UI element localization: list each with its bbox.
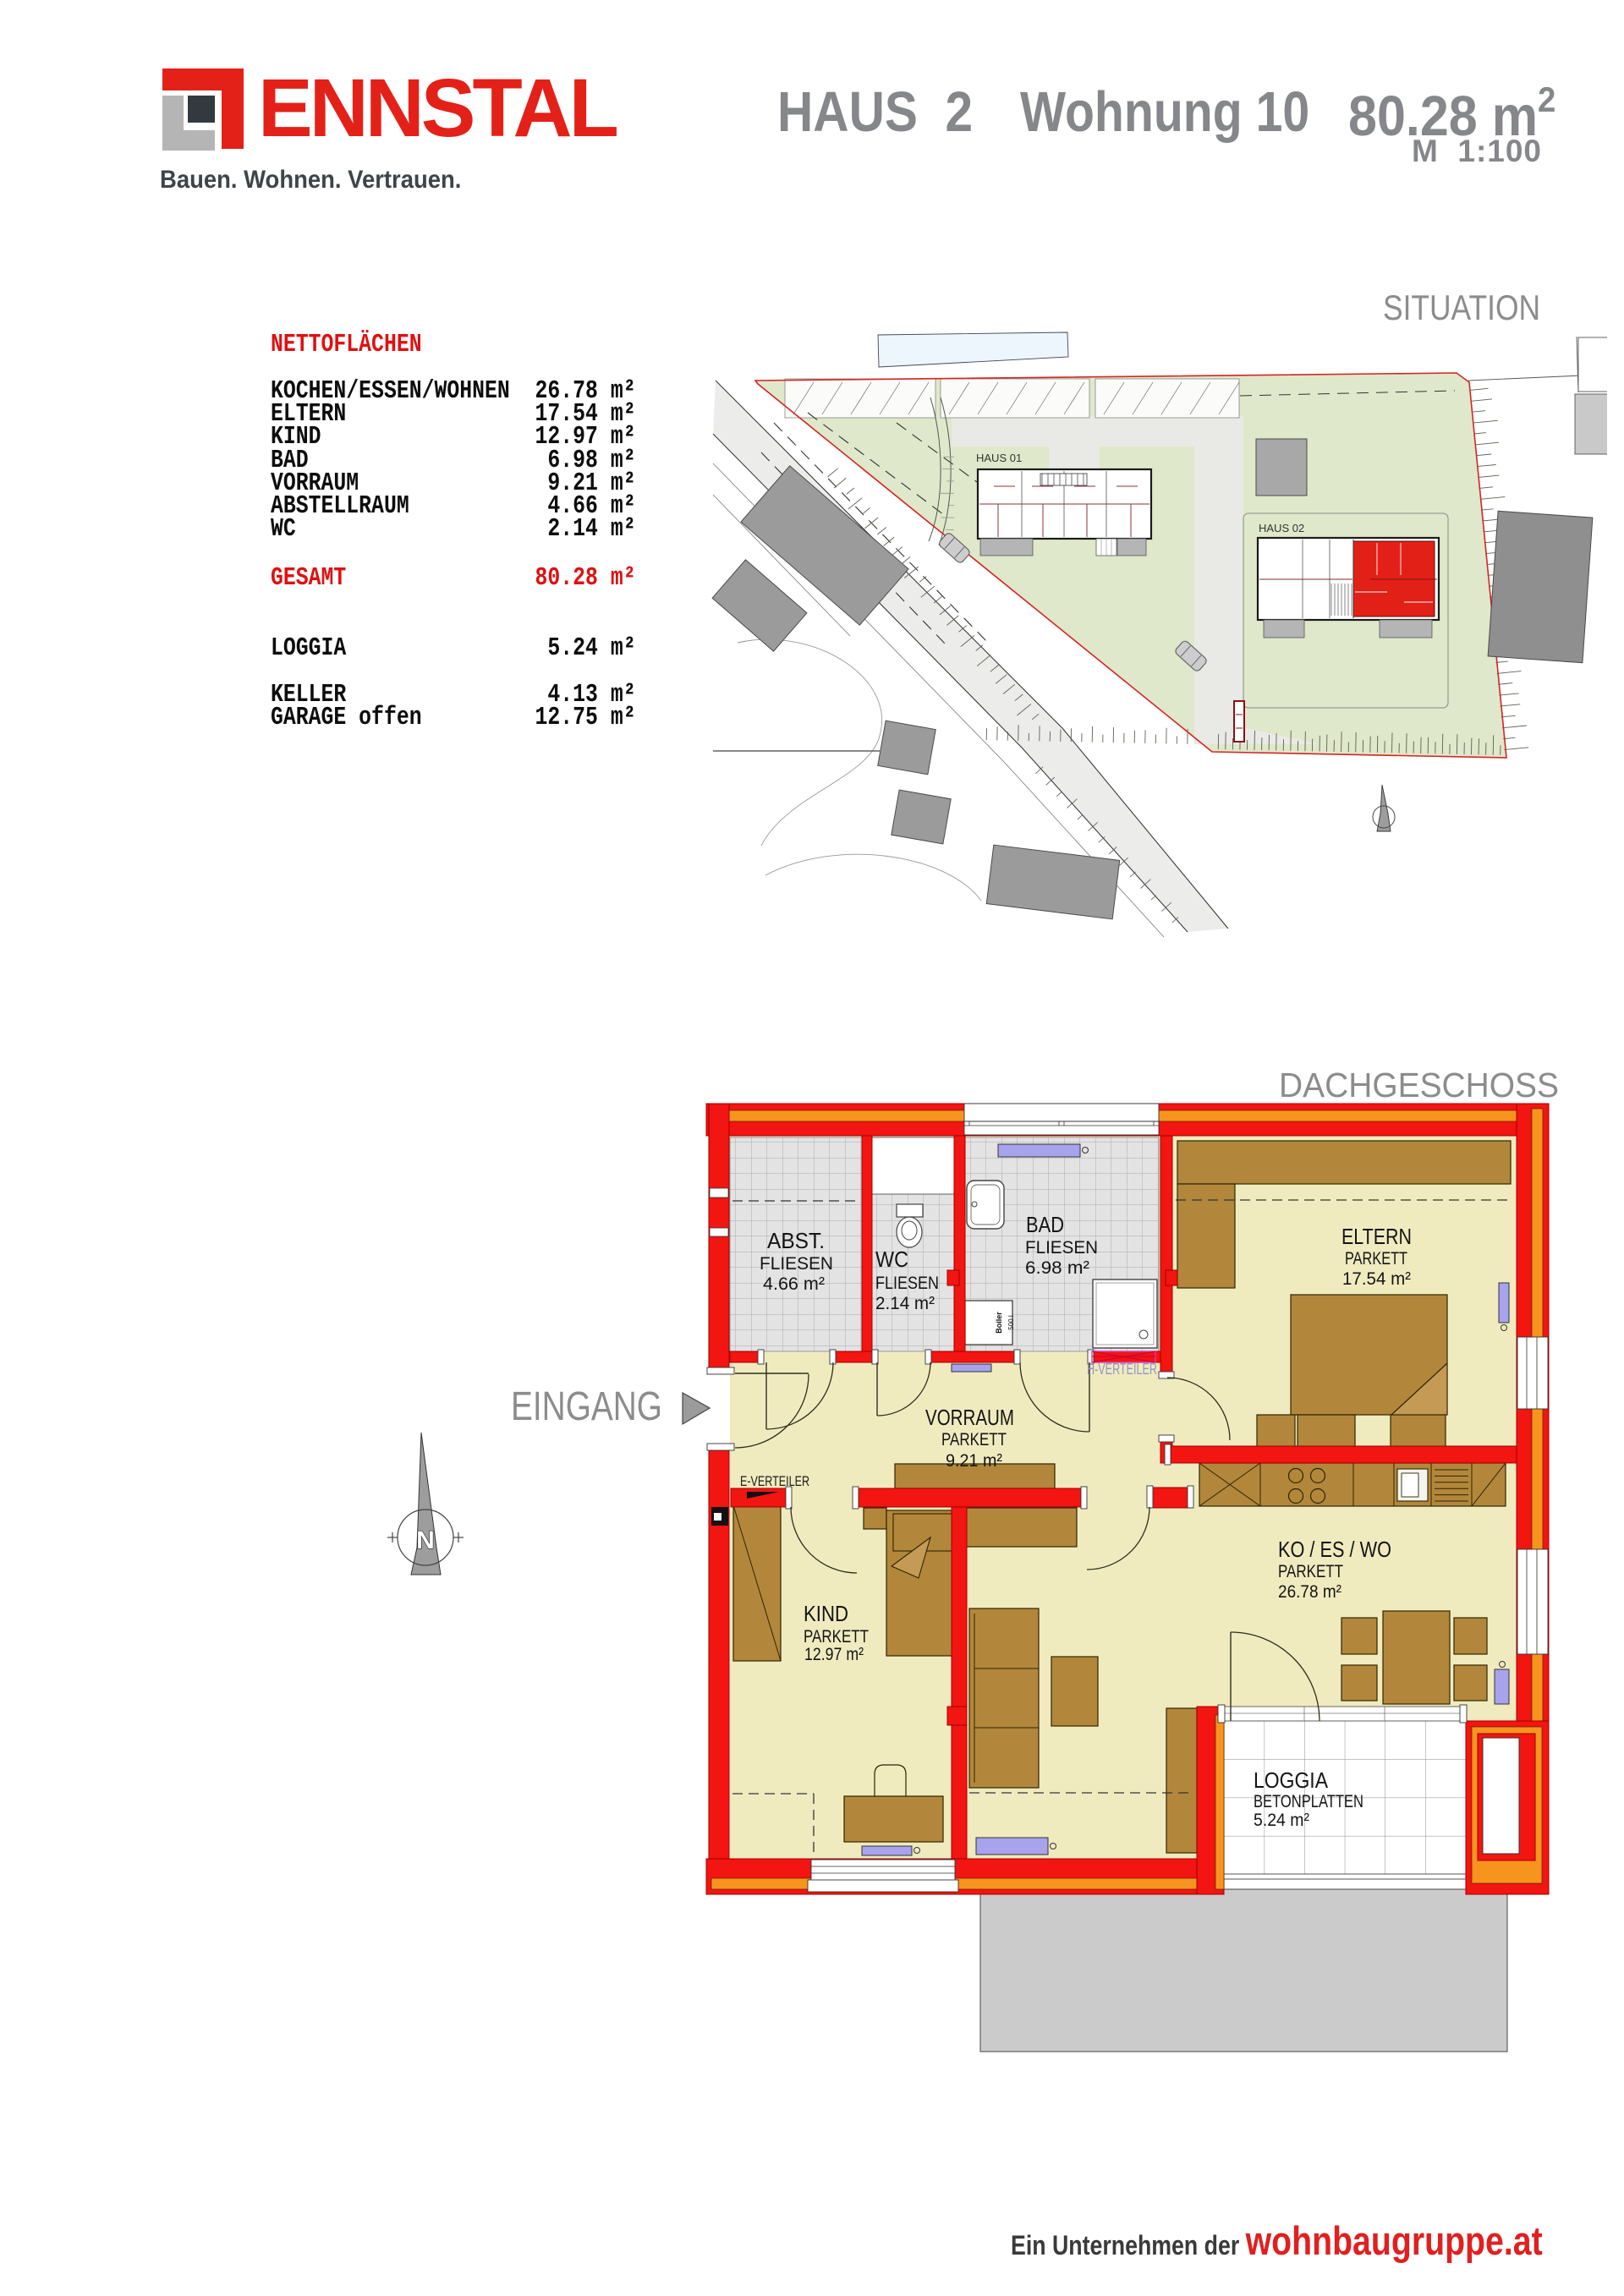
svg-text:E-VERTEILER: E-VERTEILER bbox=[740, 1473, 809, 1489]
svg-text:Boiler: Boiler bbox=[995, 1312, 1003, 1334]
svg-text:KIND: KIND bbox=[804, 1601, 848, 1626]
svg-text:BAD: BAD bbox=[1026, 1212, 1064, 1237]
svg-text:FLIESEN: FLIESEN bbox=[1025, 1238, 1098, 1258]
svg-text:12.97 m²: 12.97 m² bbox=[804, 1645, 864, 1664]
svg-text:H-VERTEILER: H-VERTEILER bbox=[1087, 1361, 1157, 1378]
svg-text:EINGANG: EINGANG bbox=[511, 1384, 662, 1429]
svg-text:VORRAUM: VORRAUM bbox=[925, 1405, 1014, 1430]
svg-text:26.78 m²: 26.78 m² bbox=[1278, 1582, 1341, 1602]
svg-text:6.98 m²: 6.98 m² bbox=[1025, 1258, 1089, 1278]
svg-text:PARKETT: PARKETT bbox=[804, 1627, 869, 1647]
svg-text:500 l: 500 l bbox=[1007, 1315, 1015, 1330]
svg-text:5.24 m²: 5.24 m² bbox=[1254, 1811, 1309, 1830]
svg-text:PARKETT: PARKETT bbox=[941, 1430, 1007, 1449]
svg-text:FLIESEN: FLIESEN bbox=[875, 1274, 939, 1293]
svg-text:4.66 m²: 4.66 m² bbox=[763, 1274, 825, 1294]
svg-text:17.54 m²: 17.54 m² bbox=[1342, 1269, 1411, 1289]
svg-text:ELTERN: ELTERN bbox=[1341, 1224, 1412, 1249]
svg-text:PARKETT: PARKETT bbox=[1345, 1249, 1407, 1269]
svg-text:9.21 m²: 9.21 m² bbox=[946, 1451, 1002, 1471]
svg-text:N: N bbox=[416, 1526, 435, 1554]
svg-text:2.14 m²: 2.14 m² bbox=[875, 1294, 935, 1313]
svg-text:HAUS 01: HAUS 01 bbox=[976, 452, 1022, 464]
svg-text:BETONPLATTEN: BETONPLATTEN bbox=[1254, 1792, 1363, 1811]
svg-text:WC: WC bbox=[875, 1247, 908, 1272]
svg-text:LOGGIA: LOGGIA bbox=[1254, 1767, 1329, 1793]
svg-text:KO / ES / WO: KO / ES / WO bbox=[1278, 1537, 1391, 1562]
svg-text:SITUATION: SITUATION bbox=[1383, 288, 1540, 327]
svg-text:FLIESEN: FLIESEN bbox=[760, 1254, 833, 1274]
svg-text:PARKETT: PARKETT bbox=[1278, 1562, 1343, 1581]
svg-text:HAUS 02: HAUS 02 bbox=[1259, 522, 1304, 534]
svg-text:ABST.: ABST. bbox=[767, 1228, 825, 1253]
svg-text:DACHGESCHOSS: DACHGESCHOSS bbox=[1279, 1066, 1559, 1104]
